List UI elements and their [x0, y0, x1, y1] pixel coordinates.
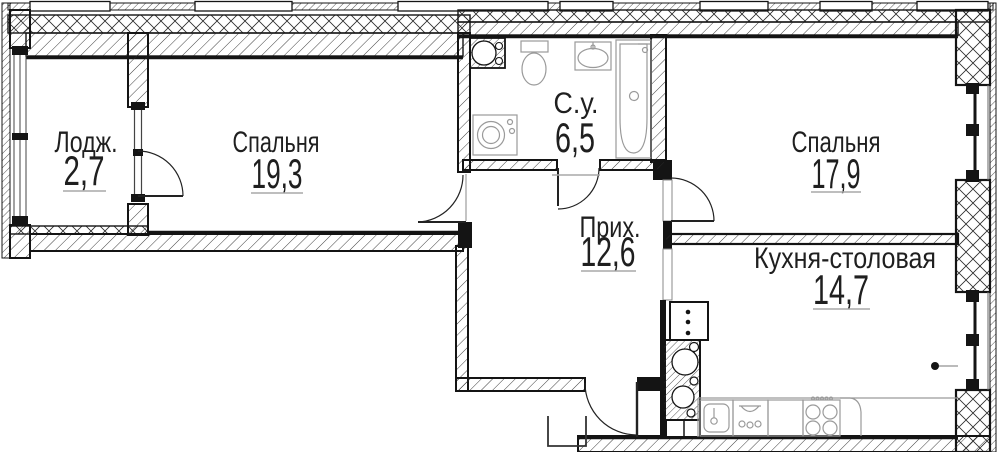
bathroom-east-wall	[651, 35, 666, 162]
room-area-bedroom-1: 19,3	[252, 150, 303, 197]
kitchen-window	[966, 290, 988, 391]
loggia-door	[138, 151, 183, 196]
room-area-kitchen: 14,7	[813, 266, 869, 313]
counter-end-curve	[840, 398, 861, 436]
loggia-divider-bottom	[128, 204, 148, 235]
room-area-loggia: 2,7	[64, 147, 105, 194]
bathroom-west-wall	[458, 33, 470, 172]
loggia-french-window	[131, 102, 145, 202]
bedroom-2-window	[966, 83, 988, 182]
room-loggia: Лодж. 2,7	[55, 126, 118, 194]
top-wall-right	[458, 22, 958, 35]
toilet	[521, 41, 548, 85]
room-area-bedroom-2: 17,9	[812, 150, 861, 197]
top-wall-insulation-right	[458, 10, 990, 22]
facade-strip-left	[2, 3, 10, 258]
service-shaft	[663, 302, 708, 437]
right-wall-block-mid	[956, 180, 990, 292]
room-bedroom-2: Спальня 17,9	[792, 126, 881, 197]
bathroom-south-wall-east	[600, 160, 665, 170]
room-area-hallway: 12,6	[581, 228, 636, 275]
loggia-divider-top	[128, 33, 148, 107]
kitchen-counter	[698, 397, 958, 437]
drainer-unit	[733, 400, 768, 436]
top-wall-left	[26, 33, 463, 56]
washbasin	[575, 42, 611, 70]
stove	[803, 397, 840, 436]
bedroom-1-door	[418, 174, 466, 222]
kitchen-sink	[700, 400, 733, 436]
corner-sink	[470, 38, 505, 68]
bathtub	[616, 40, 651, 158]
bathroom-door	[558, 168, 599, 209]
room-labels: Лодж. 2,7 Спальня 19,3 С.у. 6,5 Прих. 12…	[55, 87, 937, 313]
shaft-cabinet	[666, 420, 700, 437]
room-kitchen-dining: Кухня-столовая 14,7	[754, 242, 936, 313]
top-wall-insulation-left	[8, 15, 470, 33]
loggia-window	[12, 46, 28, 225]
left-wall-top-block	[10, 10, 30, 48]
floor-plan: Лодж. 2,7 Спальня 19,3 С.у. 6,5 Прих. 12…	[0, 0, 1000, 452]
hall-kitchen-passage	[663, 249, 672, 300]
room-area-bathroom: 6,5	[555, 114, 595, 161]
floor-plan-svg: Лодж. 2,7 Спальня 19,3 С.у. 6,5 Прих. 12…	[0, 0, 1000, 452]
bedroom-2-doorway	[663, 180, 672, 221]
bedroom-2-door	[671, 178, 714, 221]
washing-machine	[473, 115, 517, 155]
right-wall-block-top	[956, 10, 990, 85]
entrance-door-post	[637, 377, 660, 391]
room-bedroom-1: Спальня 19,3	[233, 126, 320, 197]
bathroom-south-wall-west	[463, 160, 557, 170]
room-bathroom: С.у. 6,5	[552, 87, 600, 175]
room-hallway: Прих. 12,6	[580, 211, 641, 275]
hallway-west-corner	[458, 222, 472, 248]
counter-segment	[768, 400, 803, 436]
south-wall-west	[30, 234, 463, 251]
hallway-west-wall	[456, 246, 468, 391]
kitchen-level-mark	[931, 362, 958, 370]
doors	[138, 151, 714, 446]
hallway-south-wall	[456, 378, 585, 391]
